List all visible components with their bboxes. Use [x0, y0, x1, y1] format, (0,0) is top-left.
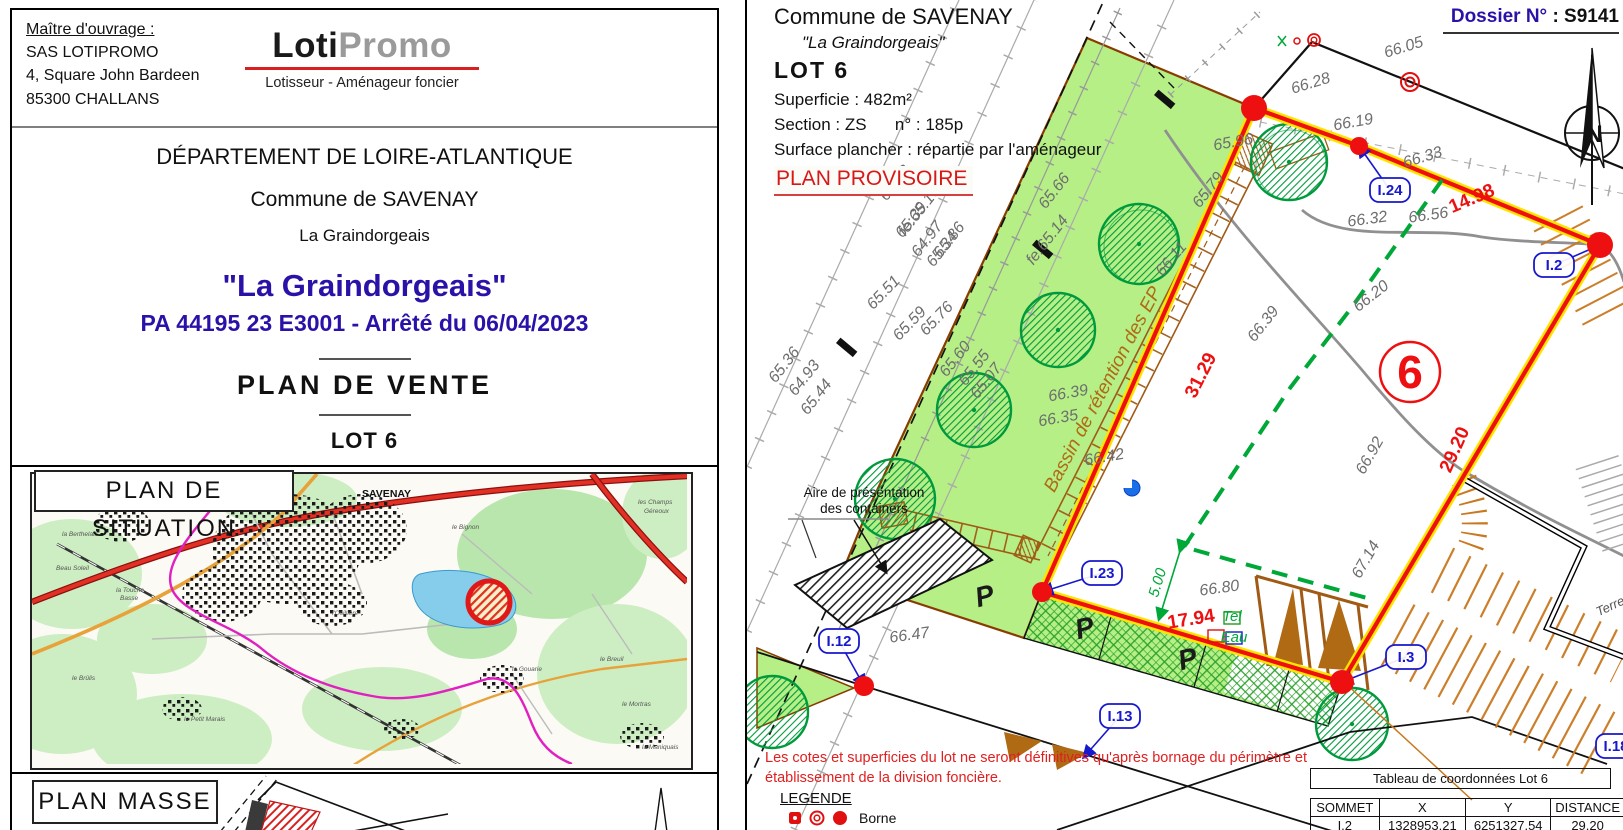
legend-title: LEGENDE: [780, 790, 852, 807]
client-label: Maître d'ouvrage :: [26, 18, 199, 41]
elev-label: 65.51: [864, 273, 904, 314]
elev-label: 66.19: [1332, 111, 1374, 135]
legend-borne-label: Borne: [859, 810, 896, 826]
coordinates-table-grid: SOMMET X Y DISTANCE I.2 1328953.21 62513…: [1310, 798, 1623, 830]
cell-y: 6251327.54: [1466, 817, 1551, 830]
rdim-label: 31.29: [1181, 350, 1221, 402]
logo-part2: Promo: [338, 26, 451, 65]
col-sommet: SOMMET: [1311, 799, 1380, 817]
document-type: PLAN DE VENTE: [12, 370, 717, 401]
map-place-label: le Petit Marais: [184, 716, 226, 723]
map-town-label: SAVENAY: [362, 488, 411, 500]
lot-number-badge: 6: [1380, 342, 1440, 402]
col-distance: DISTANCE: [1551, 799, 1623, 817]
logo-underline: [245, 67, 479, 70]
vertex-label-I.2: I.2: [1546, 257, 1563, 274]
dossier-label: Dossier N°: [1451, 6, 1547, 27]
col-x: X: [1379, 799, 1466, 817]
logo-subtitle: Lotisseur - Aménageur foncier: [237, 75, 487, 91]
elev-label: 67.14: [1349, 538, 1384, 581]
plan-sheet: 6 N 65.62fe:65.1665.8666.2866.0565.9666.…: [745, 0, 1623, 830]
client-name: SAS LOTIPROMO: [26, 41, 199, 64]
map-place-label: les Champs: [638, 499, 673, 506]
site-location-marker: [468, 581, 510, 623]
place-name: La Graindorgeais: [12, 226, 717, 246]
project-title: "La Graindorgeais": [12, 268, 717, 304]
plan-lot-title: LOT 6: [774, 57, 849, 84]
vertex-label-I.23: I.23: [1089, 565, 1114, 582]
vertex-dot-I.23: [1032, 582, 1052, 602]
client-address1: 4, Square John Bardeen: [26, 64, 199, 87]
elev-label: 66.39: [1244, 303, 1282, 345]
disclaimer-line1: Les cotes et superficies du lot ne seron…: [765, 749, 1385, 769]
gdim-label: Tel: [1222, 608, 1242, 625]
gdim-label: Eau: [1221, 629, 1248, 646]
section-divider-situation: [12, 465, 717, 467]
map-place-label: le Breuil: [600, 656, 624, 663]
masse-lot-hatch: [261, 801, 320, 830]
dossier-number: Dossier N° : S9141: [1443, 6, 1619, 34]
plan-de-vente-page: Maître d'ouvrage : SAS LOTIPROMO 4, Squa…: [0, 0, 1623, 830]
lotipromo-logo: LotiPromo Lotisseur - Aménageur foncier: [237, 26, 487, 91]
table-row: I.2 1328953.21 6251327.54 29.20: [1311, 817, 1623, 830]
client-block: Maître d'ouvrage : SAS LOTIPROMO 4, Squa…: [26, 18, 199, 111]
client-address2: 85300 CHALLANS: [26, 88, 199, 111]
vertex-dot-I.24: [1350, 137, 1368, 155]
vertex-dot-I.3: [1330, 670, 1354, 694]
plan-section: Section : ZS n° : 185p: [774, 115, 963, 135]
elev-label: 66.80: [1198, 577, 1240, 599]
vertex-label-I.13: I.13: [1107, 708, 1132, 725]
vertex-label-I.24: I.24: [1377, 182, 1403, 199]
logo-part1: Loti: [272, 26, 338, 65]
coordinates-table: Tableau de coordonnées Lot 6 SOMMET X Y …: [1310, 768, 1623, 830]
department-title: DÉPARTEMENT DE LOIRE-ATLANTIQUE: [12, 144, 717, 170]
masse-plan-fragment: [208, 774, 716, 830]
map-place-label: Beau Soleil: [56, 565, 89, 572]
map-place-label: l'Osillière: [332, 610, 359, 617]
title-sheet: Maître d'ouvrage : SAS LOTIPROMO 4, Squa…: [10, 8, 719, 830]
legend-borne-row: Borne: [787, 809, 896, 827]
map-place-label: la Maniquais: [642, 744, 679, 751]
vertex-label-I.12: I.12: [826, 633, 851, 650]
elev-label: 66.56: [1407, 204, 1449, 226]
plan-commune: Commune de SAVENAY: [774, 4, 1013, 30]
coordinates-table-title: Tableau de coordonnées Lot 6: [1310, 768, 1611, 789]
plan-superficie: Superficie : 482m²: [774, 90, 912, 110]
commune-title: Commune de SAVENAY: [12, 188, 717, 212]
disclaimer-line2: établissement de la division foncière.: [765, 769, 1385, 789]
dossier-value: : S9141: [1547, 6, 1619, 27]
cell-sommet: I.2: [1311, 817, 1380, 830]
cell-distance: 29.20: [1551, 817, 1623, 830]
disclaimer-note: Les cotes et superficies du lot ne seron…: [765, 749, 1385, 788]
lot-title: LOT 6: [12, 428, 717, 454]
masse-north-arrow: [655, 788, 667, 830]
cont-label: des containers: [820, 501, 908, 516]
north-letter: N: [1585, 121, 1602, 148]
north-compass: N: [1565, 48, 1619, 205]
permit-number: PA 44195 23 E3001 - Arrêté du 06/04/2023: [12, 310, 717, 337]
map-place-label: Basse: [120, 595, 138, 602]
divider-rule-1: [319, 358, 411, 360]
lot-number: 6: [1397, 346, 1423, 398]
cont-label: Aire de présentation: [804, 485, 925, 500]
elev-label: 66.28: [1289, 70, 1332, 98]
map-place-label: le Mortras: [622, 701, 652, 708]
borne-symbols-icon: [787, 809, 853, 827]
situation-title-box: PLAN DE SITUATION: [34, 470, 294, 512]
plan-surface-plancher: Surface plancher : répartie par l'aménag…: [774, 140, 1101, 160]
elev-label: 66.05: [1382, 34, 1425, 62]
masse-title-box: PLAN MASSE: [32, 780, 218, 824]
elev-label: 66.32: [1346, 208, 1388, 230]
vertex-dot-I.2: [1587, 232, 1613, 258]
sheet-header: Maître d'ouvrage : SAS LOTIPROMO 4, Squa…: [12, 10, 717, 128]
elev-label: 66.20: [1350, 277, 1392, 315]
vertex-label-I.18: I.18: [1603, 738, 1623, 755]
elev-label: 66.92: [1353, 434, 1388, 477]
map-place-label: Géreoux: [644, 508, 670, 515]
terre-label: Terre: [1593, 593, 1623, 619]
provisional-stamp: PLAN PROVISOIRE: [774, 166, 973, 196]
map-place-label: le Bignon: [452, 524, 479, 531]
elev-label: 66.47: [888, 624, 931, 647]
col-y: Y: [1466, 799, 1551, 817]
map-place-label: le Brûlis: [72, 675, 96, 682]
map-place-label: la Gouarie: [512, 666, 542, 673]
vertex-label-I.3: I.3: [1398, 649, 1415, 666]
dossier-underline: [1443, 32, 1619, 34]
cell-x: 1328953.21: [1379, 817, 1466, 830]
vertex-dot-I.12: [854, 676, 874, 696]
plan-place: "La Graindorgeais": [802, 33, 944, 53]
boundary-corner-dot: [1241, 95, 1267, 121]
gray-hatch: [1597, 462, 1623, 548]
divider-rule-2: [319, 414, 411, 416]
map-place-label: la Touche: [116, 587, 144, 594]
